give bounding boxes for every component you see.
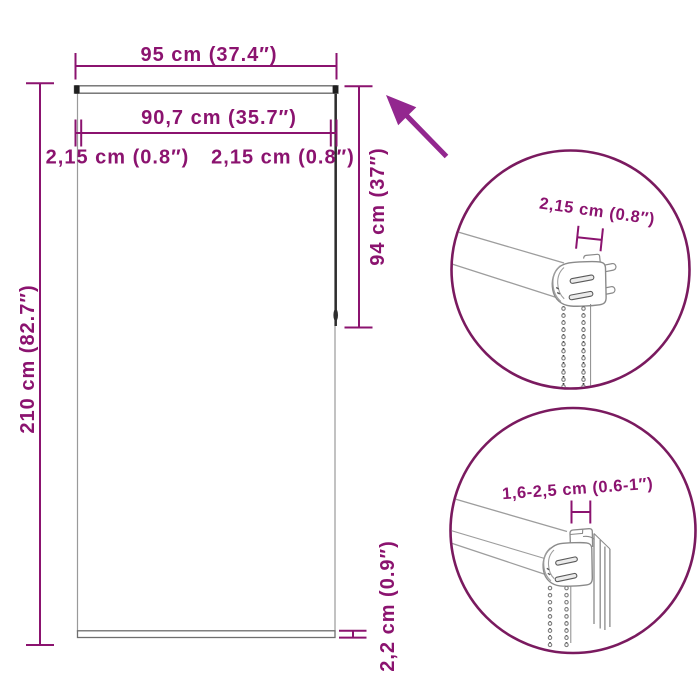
svg-text:210 cm (82.7″): 210 cm (82.7″) [17,284,39,433]
svg-text:2,15 cm (0.8″): 2,15 cm (0.8″) [211,147,355,169]
svg-text:90,7 cm (35.7″): 90,7 cm (35.7″) [141,107,297,129]
svg-text:95 cm (37.4″): 95 cm (37.4″) [140,44,277,66]
svg-text:94 cm (37″): 94 cm (37″) [367,147,389,265]
svg-text:2,15 cm (0.8″): 2,15 cm (0.8″) [46,147,190,169]
svg-text:2,2 cm (0.9″): 2,2 cm (0.9″) [377,540,399,672]
